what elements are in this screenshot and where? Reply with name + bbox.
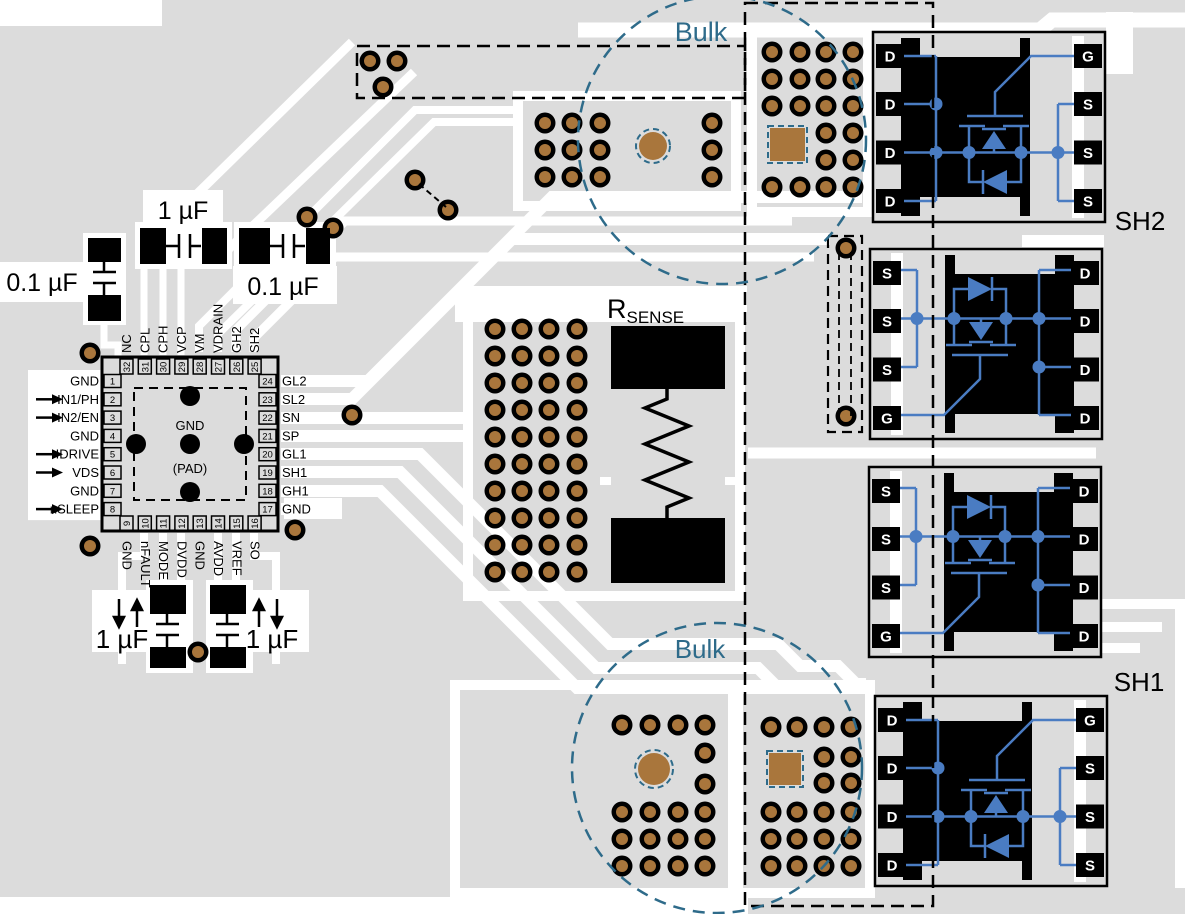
thermal-via xyxy=(180,434,200,454)
via xyxy=(594,171,606,183)
trace xyxy=(455,286,747,322)
ic-pin-label: nFAULT xyxy=(138,541,153,588)
via xyxy=(791,806,803,818)
ic-pin-label: DVDD xyxy=(174,541,189,578)
sense-resistor: RSENSE xyxy=(607,294,725,583)
ic-pin-number: 6 xyxy=(110,468,115,479)
via xyxy=(706,171,718,183)
via xyxy=(616,719,628,731)
mosfet-pin-label: S xyxy=(881,532,891,549)
via xyxy=(818,833,830,845)
via xyxy=(84,347,96,359)
ic-pin-number: 27 xyxy=(214,362,225,373)
cap-label-1uf-bottom-left: 1 µF xyxy=(96,624,149,654)
via xyxy=(539,171,551,183)
thermal-via xyxy=(126,434,146,454)
via xyxy=(571,458,583,470)
ic-pin-number: 25 xyxy=(250,362,261,373)
via xyxy=(616,806,628,818)
ic-pin-number: 9 xyxy=(122,521,133,526)
via xyxy=(672,719,684,731)
ic-pin-label: GND xyxy=(70,374,99,389)
via xyxy=(616,860,628,872)
copper-pad-round xyxy=(639,132,667,160)
ic-pin-number: 15 xyxy=(232,518,243,529)
ic-pin-label: SH2 xyxy=(247,328,262,353)
ic-pin-label: VCP xyxy=(174,326,189,353)
cap-label-1uf-bottom-right: 1 µF xyxy=(246,624,299,654)
via xyxy=(543,404,555,416)
ic-pin-label: VM xyxy=(192,334,207,354)
via xyxy=(346,409,358,421)
via xyxy=(489,431,501,443)
capacitor-0_1uf-left xyxy=(88,238,121,321)
mosfet-pin-label: S xyxy=(1083,97,1093,114)
via xyxy=(765,833,777,845)
capacitor-1uf-bottom-right xyxy=(210,585,246,668)
ic-pin-number: 3 xyxy=(110,413,115,424)
sh2-label: SH2 xyxy=(1115,206,1166,236)
via xyxy=(489,377,501,389)
mosfet-pin-label: D xyxy=(1079,629,1090,646)
bulk-label-bottom: Bulk xyxy=(675,634,727,664)
mosfet-pin-label: S xyxy=(1085,761,1095,778)
via xyxy=(489,350,501,362)
via xyxy=(566,171,578,183)
ic-pin-label: SO xyxy=(248,541,263,560)
via xyxy=(516,512,528,524)
mosfet-pin-label: D xyxy=(1080,266,1091,283)
via xyxy=(489,539,501,551)
via xyxy=(672,833,684,845)
via xyxy=(489,458,501,470)
via xyxy=(847,100,859,112)
via xyxy=(543,566,555,578)
via xyxy=(616,833,628,845)
via xyxy=(766,46,778,58)
copper-pad-square xyxy=(770,128,805,161)
mosfet-pin-label: D xyxy=(887,858,898,875)
via xyxy=(543,512,555,524)
ic-pin-label: GND xyxy=(70,428,99,443)
ic-pin-number: 20 xyxy=(262,450,273,461)
mosfet-pin-label: S xyxy=(1085,809,1095,826)
ic-pin-number: 22 xyxy=(262,413,273,424)
via xyxy=(794,73,806,85)
via xyxy=(699,806,711,818)
mosfet-pin-label: D xyxy=(887,809,898,826)
via xyxy=(820,73,832,85)
via xyxy=(672,806,684,818)
via xyxy=(699,747,711,759)
thermal-via xyxy=(234,434,254,454)
via xyxy=(543,323,555,335)
ic-pin-label: MODE xyxy=(156,541,171,580)
ic-pin-number: 23 xyxy=(262,395,273,406)
via xyxy=(765,806,777,818)
via xyxy=(391,55,403,67)
via xyxy=(791,860,803,872)
package-notch xyxy=(954,632,1054,651)
ic-pin-number: 17 xyxy=(262,505,273,516)
via xyxy=(845,751,857,763)
mosfet-top-right: DGDSDSDS xyxy=(873,32,1105,222)
mosfet-pin-label: D xyxy=(1079,484,1090,501)
rsense-label-subscript: SENSE xyxy=(627,308,685,327)
ic-pin-label: GND xyxy=(282,502,311,517)
ic-pin-number: 13 xyxy=(195,518,206,529)
via xyxy=(489,323,501,335)
ic-pin-number: 32 xyxy=(122,362,133,373)
via xyxy=(516,566,528,578)
mosfet-upper-middle: SDSDSDGD xyxy=(870,249,1102,439)
via xyxy=(845,860,857,872)
mosfet-pin-label: S xyxy=(881,484,891,501)
via xyxy=(516,323,528,335)
ic-pin-label: IN1/PH xyxy=(57,392,99,407)
ic-pin-number: 5 xyxy=(110,450,115,461)
via xyxy=(794,100,806,112)
via xyxy=(794,181,806,193)
ic-pin-number: 21 xyxy=(262,431,273,442)
via xyxy=(516,350,528,362)
ic-pin-number: 1 xyxy=(110,377,115,388)
via xyxy=(516,539,528,551)
via xyxy=(516,458,528,470)
via xyxy=(543,539,555,551)
mosfet-pin-label: S xyxy=(882,314,892,331)
via xyxy=(516,485,528,497)
via xyxy=(766,181,778,193)
ic-pin-label: CPL xyxy=(137,328,152,353)
mosfet-pin-label: D xyxy=(885,194,896,211)
ic-pin-number: 31 xyxy=(140,362,151,373)
via xyxy=(818,777,830,789)
via xyxy=(571,485,583,497)
via xyxy=(818,721,830,733)
via xyxy=(571,512,583,524)
via xyxy=(644,860,656,872)
rsense-pad-bottom xyxy=(611,518,725,583)
via xyxy=(699,833,711,845)
via xyxy=(489,566,501,578)
via xyxy=(571,539,583,551)
via xyxy=(699,860,711,872)
via xyxy=(845,777,857,789)
ic-pin-number: 7 xyxy=(110,486,115,497)
mosfet-pin-label: D xyxy=(887,761,898,778)
ic-pin-number: 29 xyxy=(177,362,188,373)
via xyxy=(847,46,859,58)
via xyxy=(706,144,718,156)
via xyxy=(706,117,718,129)
via xyxy=(766,73,778,85)
sh1-label: SH1 xyxy=(1114,667,1165,697)
mosfet-bottom-right: DGDSDSDS xyxy=(875,696,1107,886)
via xyxy=(571,323,583,335)
ic-pin-label: GND xyxy=(193,541,208,570)
trace xyxy=(0,897,748,914)
via xyxy=(644,806,656,818)
mosfet-pin-label: D xyxy=(1079,580,1090,597)
ic-pin-number: 26 xyxy=(232,362,243,373)
cap-label-0_1uf-top: 0.1 µF xyxy=(247,273,318,301)
ic-pin-label: VDS xyxy=(72,465,99,480)
via xyxy=(516,431,528,443)
via xyxy=(289,524,301,536)
via xyxy=(543,458,555,470)
pcb-board: 0.1 µF 1 µF 0.1 µF 1 µF 1 µF RSENSE GND(… xyxy=(0,0,1185,914)
ic-pin-label: NC xyxy=(119,334,134,353)
via xyxy=(820,181,832,193)
ic-pin-label: GH1 xyxy=(282,483,309,498)
via xyxy=(516,377,528,389)
mosfet-pin-label: S xyxy=(1083,145,1093,162)
via xyxy=(791,833,803,845)
ic-pin-number: 14 xyxy=(214,518,225,529)
rsense-label-base: R xyxy=(607,294,627,324)
ic-pin-label: CPH xyxy=(156,326,171,353)
mosfet-pin-label: S xyxy=(1085,858,1095,875)
via xyxy=(594,144,606,156)
ic-pin-number: 2 xyxy=(110,395,115,406)
pad-label: GND xyxy=(176,418,205,433)
ic-pin-label: AVDD xyxy=(211,541,226,576)
via xyxy=(818,806,830,818)
mosfet-pin-label: D xyxy=(1080,314,1091,331)
ic-pin-label: GL2 xyxy=(282,374,307,389)
mosfet-pin-label: G xyxy=(881,411,893,428)
ic-pin-label: GND xyxy=(120,541,135,570)
ic-pin-label: VREF xyxy=(229,541,244,576)
package-notch xyxy=(955,414,1055,433)
via xyxy=(571,350,583,362)
thermal-via xyxy=(180,482,200,502)
thermal-via xyxy=(180,386,200,406)
via xyxy=(516,404,528,416)
via xyxy=(489,485,501,497)
ic-pin-label: SN xyxy=(282,410,300,425)
mosfet-pin-label: D xyxy=(1080,411,1091,428)
ic-pin-label: GND xyxy=(70,483,99,498)
ic-pin-number: 30 xyxy=(159,362,170,373)
via xyxy=(818,751,830,763)
trace xyxy=(0,0,162,26)
mosfet-lower-middle: SDSDSDGD xyxy=(869,467,1101,657)
via xyxy=(566,144,578,156)
via xyxy=(84,540,96,552)
via xyxy=(364,55,376,67)
ic-pin-label: SP xyxy=(282,428,299,443)
ic-pin-label: GH2 xyxy=(229,326,244,353)
mosfet-pin-label: D xyxy=(1080,362,1091,379)
copper-pad-square xyxy=(769,753,801,785)
mosfet-pin-label: G xyxy=(880,629,892,646)
via xyxy=(672,860,684,872)
via xyxy=(766,100,778,112)
via xyxy=(571,566,583,578)
rsense-pad-top xyxy=(611,326,725,389)
ic-pin-number: 18 xyxy=(262,486,273,497)
via xyxy=(847,127,859,139)
ic-pin-number: 12 xyxy=(177,518,188,529)
copper-pad-round xyxy=(638,753,670,785)
ic-pin-number: 4 xyxy=(110,431,115,442)
via xyxy=(820,100,832,112)
cap-label-0_1uf-left: 0.1 µF xyxy=(6,269,77,297)
mosfet-pin-label: S xyxy=(882,362,892,379)
capacitor-1uf-bottom-left xyxy=(150,585,186,668)
via xyxy=(192,646,204,658)
package-notch xyxy=(922,702,1022,721)
ic-pin-label: VDRAIN xyxy=(211,304,226,353)
via xyxy=(644,719,656,731)
mosfet-pin-label: S xyxy=(1083,194,1093,211)
mosfet-pin-label: G xyxy=(1084,713,1096,730)
ic-pin-number: 8 xyxy=(110,505,115,516)
via xyxy=(543,377,555,389)
mosfet-pin-label: D xyxy=(885,97,896,114)
via xyxy=(571,431,583,443)
via xyxy=(566,117,578,129)
via xyxy=(377,81,389,93)
via xyxy=(539,144,551,156)
mosfet-pin-label: D xyxy=(1079,532,1090,549)
via xyxy=(489,512,501,524)
via xyxy=(820,46,832,58)
ic-pin-number: 16 xyxy=(250,518,261,529)
via xyxy=(794,46,806,58)
via xyxy=(820,154,832,166)
via xyxy=(571,404,583,416)
ic-pin-number: 10 xyxy=(140,518,151,529)
ic-pin-number: 19 xyxy=(262,468,273,479)
via xyxy=(489,404,501,416)
via xyxy=(791,721,803,733)
bulk-label-top: Bulk xyxy=(675,17,728,47)
ic-pin-label: GL1 xyxy=(282,447,307,462)
via xyxy=(571,377,583,389)
mosfet-pin-label: S xyxy=(881,580,891,597)
ic-pin-number: 24 xyxy=(262,377,273,388)
cap-label-1uf-top: 1 µF xyxy=(158,197,209,225)
mosfet-pin-label: D xyxy=(885,145,896,162)
pad-label: (PAD) xyxy=(173,461,207,476)
via xyxy=(543,485,555,497)
ic-pin-number: 11 xyxy=(159,519,170,529)
via xyxy=(765,860,777,872)
via xyxy=(594,117,606,129)
via xyxy=(699,719,711,731)
via xyxy=(765,721,777,733)
ic-pin-label: SL2 xyxy=(282,392,305,407)
via xyxy=(543,431,555,443)
capacitor-0_1uf-top xyxy=(239,228,330,264)
via xyxy=(847,154,859,166)
ic-pin-label: IN2/EN xyxy=(57,410,99,425)
via xyxy=(543,350,555,362)
ic-pin-number: 28 xyxy=(195,362,206,373)
ic-pin-label: SH1 xyxy=(282,465,307,480)
via xyxy=(301,211,313,223)
via xyxy=(644,833,656,845)
mosfet-pin-label: S xyxy=(882,266,892,283)
mosfet-pin-label: G xyxy=(1082,49,1094,66)
package-notch xyxy=(920,38,1020,57)
mosfet-pin-label: D xyxy=(887,713,898,730)
mosfet-pin-label: D xyxy=(885,49,896,66)
via xyxy=(699,778,711,790)
via xyxy=(539,117,551,129)
via xyxy=(820,127,832,139)
pcb-layout-figure: 0.1 µF 1 µF 0.1 µF 1 µF 1 µF RSENSE GND(… xyxy=(0,0,1185,914)
capacitor-1uf-top xyxy=(140,228,227,264)
